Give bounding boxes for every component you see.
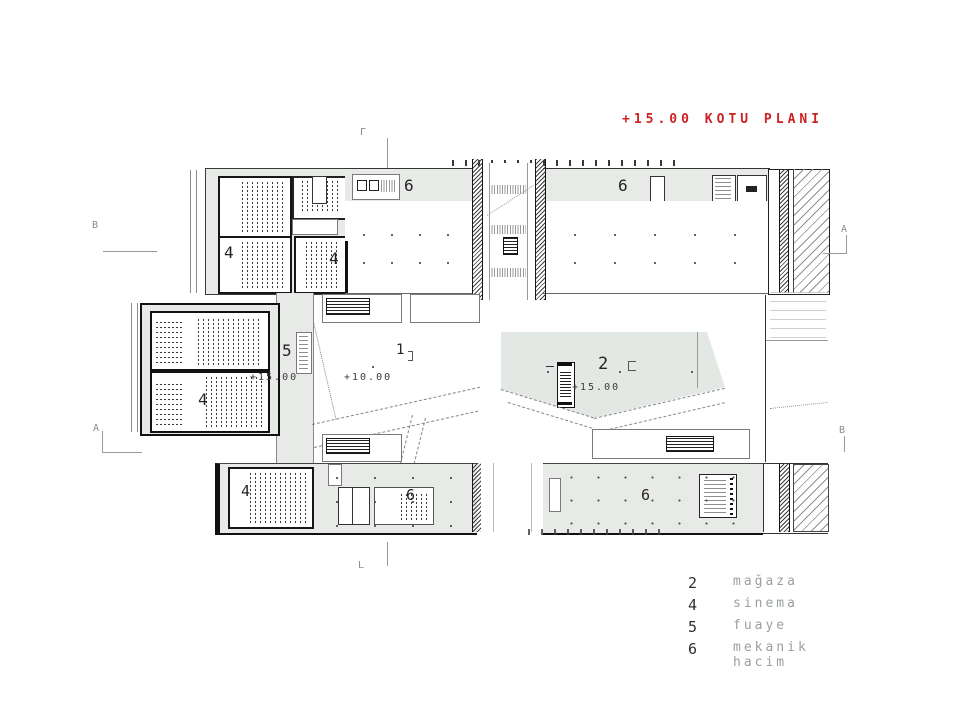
column-grid xyxy=(318,466,466,528)
edge-wall-line xyxy=(765,295,766,462)
shear-wall xyxy=(779,169,789,293)
section-line xyxy=(846,235,847,253)
edge-wall-line xyxy=(763,463,764,532)
section-line xyxy=(823,253,847,254)
dimension-ticks-bottom xyxy=(528,529,668,535)
cinema-hall-top-1 xyxy=(218,176,292,238)
section-line xyxy=(102,452,142,453)
lift-shaft xyxy=(296,332,312,374)
cinema-seats xyxy=(156,381,182,425)
stair-flight xyxy=(489,268,526,277)
core-line xyxy=(527,163,528,300)
column-grid xyxy=(555,221,763,289)
room-label-cinema: 4 xyxy=(329,249,340,268)
room-label-foyer: 5 xyxy=(282,341,293,360)
column-grid xyxy=(335,328,445,416)
stair-top-right xyxy=(712,175,736,204)
core-wall-left xyxy=(472,159,483,300)
small-room xyxy=(292,219,338,235)
facade-double-line-top-left xyxy=(190,170,197,293)
wc-block xyxy=(737,175,767,204)
louver-lines xyxy=(770,292,826,338)
hatched-volume-top xyxy=(793,169,829,293)
hall-top-left xyxy=(345,201,472,294)
plan-title: +15.00 KOTU PLANI xyxy=(622,112,823,127)
room-label-cinema: 4 xyxy=(198,390,209,409)
gap-corridor xyxy=(481,463,543,532)
cinema-seats xyxy=(206,377,262,427)
terrace-edge xyxy=(766,340,828,341)
room-label-mech: 6 xyxy=(618,176,629,195)
section-line xyxy=(102,431,103,452)
legend-number: 2 xyxy=(688,574,697,592)
fixture xyxy=(746,186,757,192)
bench xyxy=(326,298,370,315)
legend-number: 6 xyxy=(688,640,697,658)
elevation-foyer: +15.00 xyxy=(250,372,298,383)
room-label-cinema: 4 xyxy=(241,482,251,500)
elevator-cab xyxy=(369,180,379,191)
room-label-mech: 6 xyxy=(404,176,415,195)
cinema-seats xyxy=(242,242,286,288)
column-grid xyxy=(350,221,468,289)
column-grid xyxy=(558,466,758,528)
bench xyxy=(666,436,714,452)
void-edge xyxy=(770,402,828,409)
void-edge xyxy=(313,322,336,420)
section-mark-right-top: A xyxy=(841,224,847,235)
bench xyxy=(326,438,370,454)
legend-label: mağaza xyxy=(733,574,798,589)
section-mark-top: Γ xyxy=(360,127,366,138)
section-line xyxy=(844,436,845,452)
core-wall-right xyxy=(535,159,546,300)
legend-number: 4 xyxy=(688,596,697,614)
room-label-cinema: 4 xyxy=(224,243,235,262)
shaft xyxy=(312,176,327,204)
hall-top-right xyxy=(543,201,770,294)
cinema-seats xyxy=(198,317,262,365)
cinema-seats xyxy=(250,473,308,523)
section-line-bottom xyxy=(387,542,388,566)
drawing-sheet: +15.00 KOTU PLANI Γ 4 4 6 6 xyxy=(0,0,960,720)
section-mark-left-bottom: A xyxy=(93,423,99,434)
corridor-line xyxy=(531,463,532,532)
legend-label: sinema xyxy=(733,596,798,611)
section-line-top xyxy=(387,138,388,168)
corridor-line xyxy=(493,463,494,532)
section-mark-right-bottom: B xyxy=(839,425,845,436)
elevator-block xyxy=(352,174,400,200)
wall-segment xyxy=(345,241,348,293)
stair-flight xyxy=(381,180,395,192)
core-corridor xyxy=(481,163,535,300)
stair-flight xyxy=(715,178,731,199)
legend-number: 5 xyxy=(688,618,697,636)
room-outline xyxy=(410,294,480,323)
elevator-cab xyxy=(357,180,367,191)
shaft xyxy=(650,176,665,204)
facade-double-line-mid-left xyxy=(131,303,138,432)
cinema-hall-mid-1 xyxy=(150,311,270,371)
cinema-seats xyxy=(242,182,286,232)
shear-wall xyxy=(779,463,790,532)
column-grid xyxy=(512,334,737,418)
cinema-seats xyxy=(156,319,182,363)
legend-label: fuaye xyxy=(733,618,787,633)
stair-flight xyxy=(489,225,526,234)
section-mark-bottom: L xyxy=(358,560,364,571)
legend-label: mekanik hacim xyxy=(733,640,809,670)
section-mark-left-top: B xyxy=(92,220,98,231)
cinema-hall-top-4 xyxy=(294,236,348,294)
stair-flight xyxy=(299,336,308,369)
section-line xyxy=(103,251,157,252)
legend: 2 mağaza 4 sinema 5 fuaye 6 mekanik haci… xyxy=(688,574,908,664)
escalator xyxy=(503,237,518,255)
hatched-volume-bottom xyxy=(793,464,829,532)
